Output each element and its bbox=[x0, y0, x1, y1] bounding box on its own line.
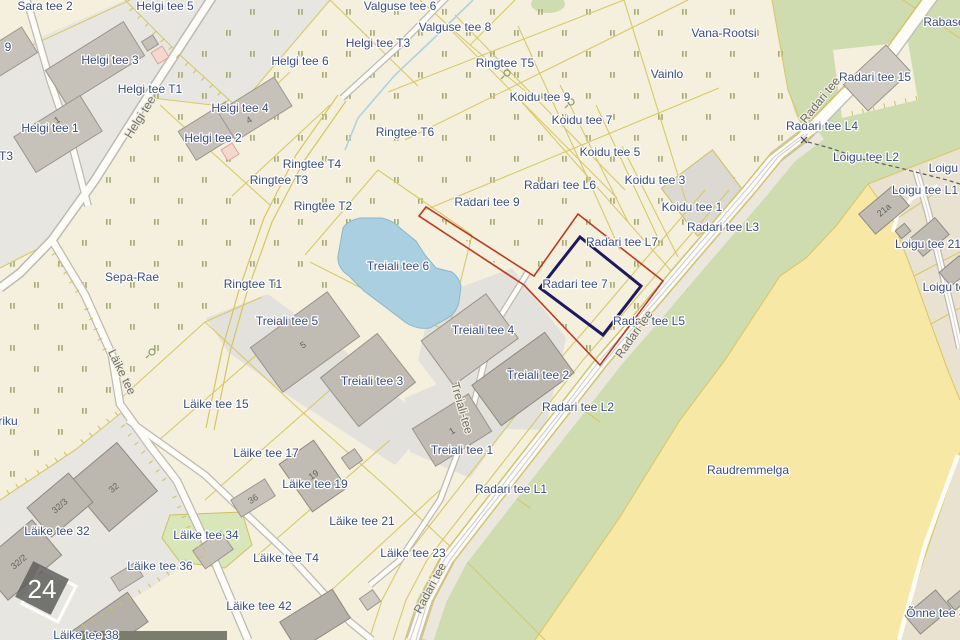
svg-text:Ringtee T3: Ringtee T3 bbox=[250, 173, 309, 187]
svg-text:Vana-Rootsi: Vana-Rootsi bbox=[691, 26, 756, 40]
svg-text:Radari tee 15: Radari tee 15 bbox=[839, 70, 911, 84]
svg-text:Läike tee 42: Läike tee 42 bbox=[226, 599, 292, 613]
svg-text:Radari tee L4: Radari tee L4 bbox=[786, 119, 858, 133]
svg-text:Läike tee 17: Läike tee 17 bbox=[233, 446, 299, 460]
svg-text:Treiali tee 2: Treiali tee 2 bbox=[507, 368, 570, 382]
svg-text:Koidu tee 3: Koidu tee 3 bbox=[625, 173, 686, 187]
svg-text:Radari tee L7: Radari tee L7 bbox=[586, 235, 658, 249]
svg-text:Helgi tee 1: Helgi tee 1 bbox=[21, 121, 79, 135]
svg-text:9: 9 bbox=[5, 40, 12, 54]
svg-text:Helgi tee 3: Helgi tee 3 bbox=[81, 53, 139, 67]
svg-text:Loigu tee L1: Loigu tee L1 bbox=[892, 183, 958, 197]
svg-text:Treiali tee 1: Treiali tee 1 bbox=[431, 443, 494, 457]
svg-text:Helgi tee 2: Helgi tee 2 bbox=[184, 131, 242, 145]
svg-text:Sepa-Rae: Sepa-Rae bbox=[105, 270, 159, 284]
svg-text:Koidu tee 5: Koidu tee 5 bbox=[580, 145, 641, 159]
svg-text:Vainlo: Vainlo bbox=[651, 67, 684, 81]
svg-text:Loigu te: Loigu te bbox=[929, 161, 960, 175]
svg-text:Läike tee 19: Läike tee 19 bbox=[282, 477, 348, 491]
svg-text:Läike tee 21: Läike tee 21 bbox=[329, 514, 395, 528]
svg-text:Sara tee 2: Sara tee 2 bbox=[17, 0, 73, 13]
svg-text:Treiali tee 5: Treiali tee 5 bbox=[256, 314, 319, 328]
svg-text:Läike tee 15: Läike tee 15 bbox=[183, 397, 249, 411]
svg-text:Helgi tee 4: Helgi tee 4 bbox=[211, 101, 269, 115]
svg-text:Treiali tee 4: Treiali tee 4 bbox=[452, 323, 515, 337]
svg-text:Radari tee 9: Radari tee 9 bbox=[454, 195, 520, 209]
svg-text:Rabase: Rabase bbox=[923, 15, 960, 29]
svg-text:Läike tee 38: Läike tee 38 bbox=[53, 628, 119, 640]
svg-text:Helgi tee T1: Helgi tee T1 bbox=[118, 82, 183, 96]
svg-text:Koidu tee 1: Koidu tee 1 bbox=[662, 200, 723, 214]
svg-text:Läike tee 23: Läike tee 23 bbox=[380, 546, 446, 560]
svg-text:Õnne tee 8: Õnne tee 8 bbox=[906, 605, 960, 620]
svg-text:Raudremmelga: Raudremmelga bbox=[707, 463, 789, 477]
svg-text:Ringtee T5: Ringtee T5 bbox=[476, 56, 535, 70]
svg-text:Läike tee 34: Läike tee 34 bbox=[173, 528, 239, 542]
svg-text:Läike tee 36: Läike tee 36 bbox=[127, 559, 193, 573]
svg-text:Helgi tee 6: Helgi tee 6 bbox=[271, 54, 329, 68]
svg-text:Ringtee T6: Ringtee T6 bbox=[376, 125, 435, 139]
svg-text:Loigu te: Loigu te bbox=[923, 280, 960, 294]
svg-text:Läike tee T4: Läike tee T4 bbox=[253, 551, 319, 565]
svg-text:Radari tee 7: Radari tee 7 bbox=[542, 277, 608, 291]
svg-text:riku: riku bbox=[0, 414, 18, 428]
svg-text:Radari tee L2: Radari tee L2 bbox=[542, 400, 614, 414]
svg-text:Radari tee L6: Radari tee L6 bbox=[524, 178, 596, 192]
svg-text:Valguse tee 8: Valguse tee 8 bbox=[419, 20, 492, 34]
svg-text:Läike tee 32: Läike tee 32 bbox=[24, 524, 90, 538]
svg-text:24: 24 bbox=[28, 574, 57, 604]
svg-text:Radari tee L3: Radari tee L3 bbox=[687, 220, 759, 234]
svg-text:Koidu tee 9: Koidu tee 9 bbox=[510, 90, 571, 104]
svg-text:Helgi tee 5: Helgi tee 5 bbox=[136, 0, 194, 13]
svg-text:Ringtee T2: Ringtee T2 bbox=[294, 199, 353, 213]
svg-text:Radari tee L1: Radari tee L1 bbox=[475, 482, 547, 496]
svg-text:Koidu tee 7: Koidu tee 7 bbox=[552, 113, 613, 127]
svg-text:Ringtee T1: Ringtee T1 bbox=[224, 277, 283, 291]
svg-text:Loigu tee L2: Loigu tee L2 bbox=[833, 150, 899, 164]
svg-text:T3: T3 bbox=[0, 149, 13, 163]
svg-text:Valguse tee 6: Valguse tee 6 bbox=[364, 0, 437, 13]
svg-text:Treiali tee 3: Treiali tee 3 bbox=[341, 374, 404, 388]
svg-text:Ringtee T4: Ringtee T4 bbox=[283, 157, 342, 171]
svg-text:Helgi tee T3: Helgi tee T3 bbox=[346, 36, 411, 50]
svg-text:Loigu tee 21: Loigu tee 21 bbox=[895, 237, 960, 251]
svg-text:Treiali tee 6: Treiali tee 6 bbox=[367, 259, 430, 273]
